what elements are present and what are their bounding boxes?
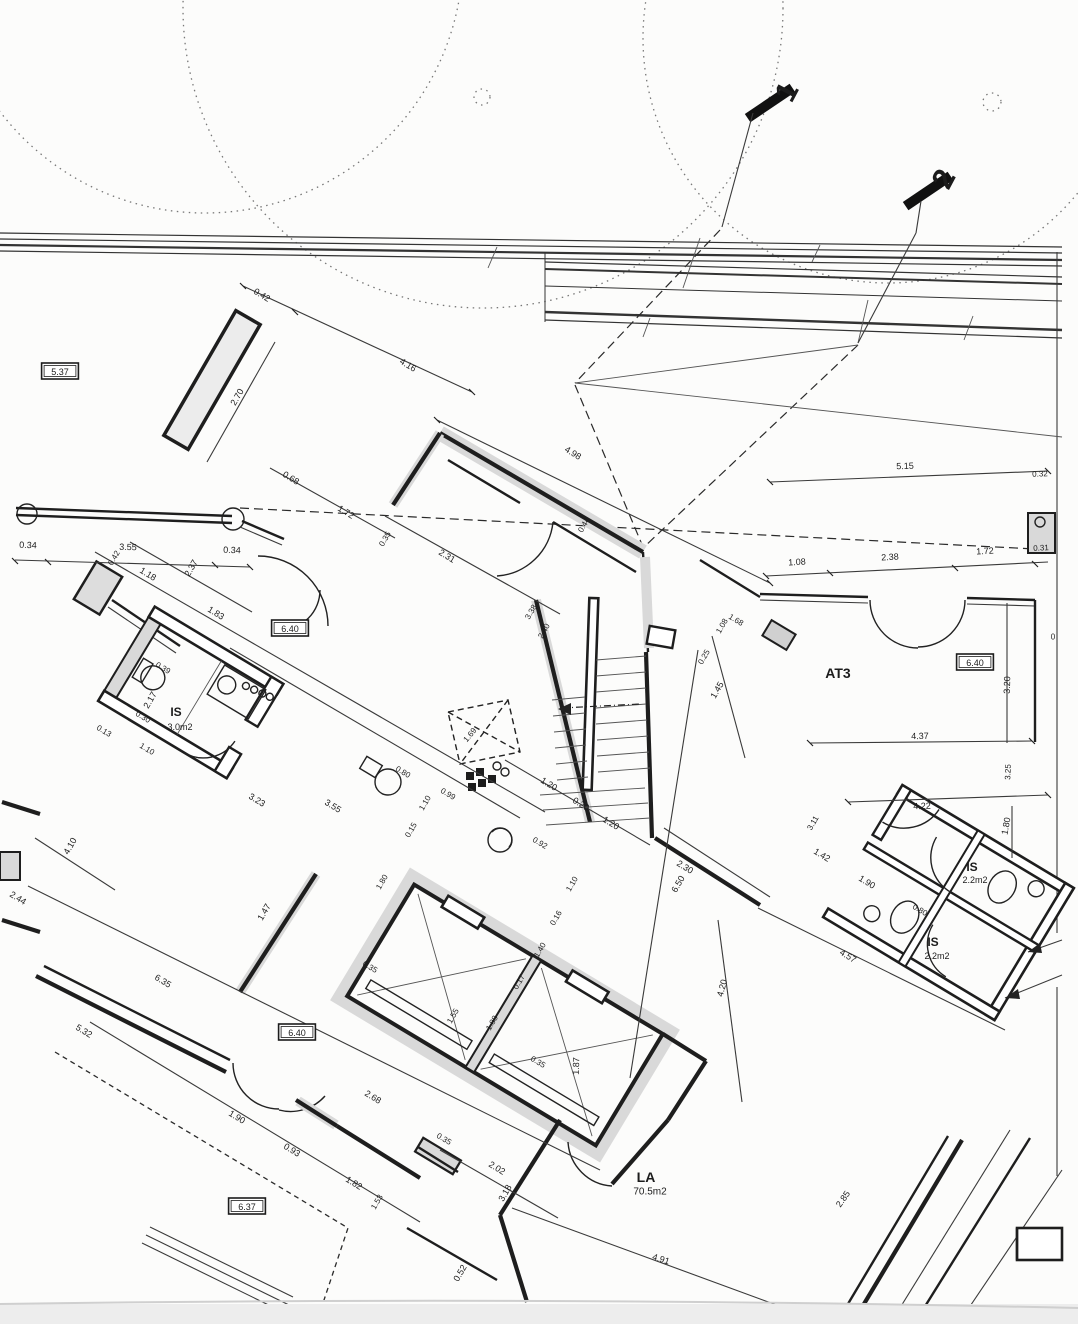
- dimension-label: 0.35: [435, 1131, 453, 1147]
- dimension-label: 1.45: [708, 680, 725, 700]
- dimension-label: 1.10: [564, 875, 580, 893]
- dimension-label: 2.38: [881, 552, 899, 563]
- svg-text:6.37: 6.37: [238, 1202, 256, 1212]
- dimension-label: 1.47: [255, 902, 272, 922]
- dimension-label: 3.11: [805, 814, 821, 832]
- toilet: [982, 866, 1022, 909]
- svg-text:1.45: 1.45: [708, 680, 725, 700]
- dimension-label: 0.34: [19, 540, 37, 551]
- svg-text:2.85: 2.85: [834, 1189, 852, 1209]
- svg-text:2.17: 2.17: [141, 690, 158, 710]
- svg-text:IS: IS: [927, 935, 938, 949]
- dimension-label: 0.52: [451, 1263, 468, 1283]
- dimension-label: 1.08: [788, 557, 806, 568]
- scan-edge: [0, 1301, 1078, 1324]
- svg-text:3.11: 3.11: [805, 814, 821, 832]
- planter: [164, 311, 275, 462]
- elevator-bank: [339, 875, 672, 1154]
- svg-text:0.31: 0.31: [1033, 543, 1050, 553]
- svg-text:0.35: 0.35: [361, 959, 379, 975]
- wc-fixtures: [360, 756, 512, 852]
- svg-text:6.50: 6.50: [669, 874, 686, 894]
- terrace-rail-bottom-left: [142, 1227, 293, 1313]
- svg-text:1.90: 1.90: [857, 873, 877, 891]
- dimension-label: 0.15: [403, 821, 419, 839]
- dimension-label: 1.90: [857, 873, 877, 891]
- dimension-label: 1.68: [727, 612, 745, 628]
- dimension-label: 0.80: [394, 764, 412, 780]
- svg-text:3.0m2: 3.0m2: [167, 722, 192, 732]
- svg-text:3.23: 3.23: [247, 791, 267, 809]
- room-area: 2.2m2: [924, 951, 949, 961]
- svg-text:0.35: 0.35: [377, 530, 393, 548]
- dimension-label: 4.37: [911, 731, 929, 741]
- svg-text:3.25: 3.25: [1003, 764, 1013, 780]
- room-label: IS: [966, 860, 977, 874]
- svg-text:1.08: 1.08: [788, 557, 806, 568]
- dimension-label: 4.16: [398, 356, 418, 374]
- svg-text:0: 0: [1051, 633, 1056, 642]
- dimension-label: 3.23: [247, 791, 267, 809]
- boundary-walls-bottom-right: [836, 940, 1062, 1324]
- svg-text:1.90: 1.90: [227, 1108, 247, 1126]
- dimension-label: 0.93: [282, 1141, 302, 1159]
- dimension-label: 1.87: [571, 1057, 582, 1075]
- svg-text:6.40: 6.40: [288, 1028, 306, 1038]
- floor-plan-drawing: 120.424.164.985.372.700.343.550.340.681.…: [0, 0, 1078, 1324]
- svg-text:0.35: 0.35: [435, 1131, 453, 1147]
- svg-text:4.10: 4.10: [61, 836, 78, 856]
- svg-text:2.2m2: 2.2m2: [924, 951, 949, 961]
- svg-text:5.32: 5.32: [74, 1022, 94, 1040]
- dimension-label: 1.20: [601, 814, 621, 832]
- svg-text:1.10: 1.10: [417, 794, 433, 812]
- svg-text:4.91: 4.91: [651, 1252, 671, 1267]
- legend-box: [1017, 1228, 1062, 1260]
- dimension-label: 3.20: [1002, 676, 1013, 694]
- dimension-label: 0.92: [531, 835, 549, 851]
- door-swing: [870, 600, 918, 648]
- dimension-label: 5.32: [74, 1022, 94, 1040]
- door-swing: [258, 556, 328, 626]
- dimension-label: 0.31: [1033, 543, 1050, 553]
- svg-text:0.34: 0.34: [19, 540, 37, 551]
- sink-block: [466, 768, 496, 791]
- sink: [861, 903, 883, 925]
- dimension-label: 2.31: [437, 547, 457, 565]
- svg-text:1.72: 1.72: [336, 503, 356, 521]
- dimension-label: 0.39: [154, 660, 172, 676]
- room-label: AT3: [825, 665, 851, 681]
- svg-text:0.32: 0.32: [1032, 469, 1048, 479]
- svg-text:1.55: 1.55: [445, 1007, 461, 1025]
- dimension-label: 4.20: [715, 978, 729, 998]
- svg-text:5.37: 5.37: [51, 367, 69, 377]
- room-label: IS: [170, 705, 181, 719]
- dimension-label: 1.72: [976, 546, 994, 557]
- dimension-label: 0.25: [696, 648, 712, 666]
- room-label: LA: [637, 1169, 656, 1185]
- is-room-left: [98, 607, 283, 779]
- svg-text:1.82: 1.82: [344, 1174, 364, 1192]
- level-label: 5.37: [42, 363, 79, 379]
- void-shaft: [448, 700, 520, 764]
- dimension-label: 0.35: [361, 959, 379, 975]
- svg-text:70.5m2: 70.5m2: [633, 1187, 667, 1198]
- dimension-label: 0: [1051, 633, 1056, 642]
- level-label: 6.40: [957, 654, 994, 670]
- svg-text:0.34: 0.34: [223, 545, 241, 556]
- svg-text:1.18: 1.18: [138, 565, 158, 583]
- svg-text:1.72: 1.72: [976, 546, 994, 557]
- terrace-walls-left: [0, 802, 40, 932]
- svg-text:2.37: 2.37: [182, 558, 199, 578]
- svg-text:1.80: 1.80: [1000, 816, 1013, 835]
- svg-text:2.70: 2.70: [228, 387, 245, 407]
- svg-text:1.83: 1.83: [206, 604, 226, 622]
- door-swing: [233, 1063, 279, 1109]
- road-band: [0, 233, 1062, 343]
- svg-text:4.22: 4.22: [913, 801, 931, 812]
- survey-point-icon: [983, 93, 1001, 111]
- dimension-label: 5.15: [896, 461, 914, 472]
- floor-plan-page: 120.424.164.985.372.700.343.550.340.681.…: [0, 0, 1078, 1324]
- svg-text:0.92: 0.92: [531, 835, 549, 851]
- svg-text:0.15: 0.15: [403, 821, 419, 839]
- dimension-label: 2.85: [834, 1189, 852, 1209]
- dimension-label: 2.37: [182, 558, 199, 578]
- level-label: 6.40: [279, 1024, 316, 1040]
- svg-text:2.38: 2.38: [881, 552, 899, 563]
- svg-text:6.40: 6.40: [281, 624, 299, 634]
- svg-text:1.53: 1.53: [369, 1193, 385, 1211]
- door-swing: [497, 522, 553, 576]
- svg-text:2.02: 2.02: [487, 1159, 507, 1177]
- svg-text:0.42: 0.42: [252, 286, 272, 304]
- dimension-label: 0.34: [223, 545, 241, 556]
- svg-text:IS: IS: [966, 860, 977, 874]
- svg-text:1.80: 1.80: [374, 873, 390, 891]
- dimension-label: 2.44: [8, 889, 28, 907]
- svg-text:4.98: 4.98: [563, 444, 583, 462]
- dimension-label: 0.35: [377, 530, 393, 548]
- section-marker-1: [575, 84, 795, 383]
- dimension-label: 4.22: [913, 801, 931, 812]
- dimension-label: 3.55: [323, 797, 343, 815]
- svg-text:4.16: 4.16: [398, 356, 418, 374]
- svg-text:1.87: 1.87: [571, 1057, 582, 1075]
- dimension-label: 0.42: [252, 286, 272, 304]
- dimension-label: 1.80: [1000, 816, 1013, 835]
- dimension-label: 2.17: [141, 690, 158, 710]
- dimension-label: 6.50: [669, 874, 686, 894]
- dimension-label: 0.13: [95, 723, 113, 739]
- svg-text:3.20: 3.20: [1002, 676, 1013, 694]
- svg-text:0.93: 0.93: [282, 1141, 302, 1159]
- room-area: 70.5m2: [633, 1187, 667, 1198]
- survey-point-icon: [474, 89, 490, 105]
- level-label: 6.40: [272, 620, 309, 636]
- svg-text:0.39: 0.39: [154, 660, 172, 676]
- column: [222, 508, 244, 530]
- stair-pier: [647, 626, 676, 648]
- svg-text:1.68: 1.68: [727, 612, 745, 628]
- svg-text:3.55: 3.55: [323, 797, 343, 815]
- svg-text:2.68: 2.68: [363, 1088, 383, 1106]
- svg-text:4.57: 4.57: [838, 947, 858, 965]
- door-swing: [918, 600, 965, 647]
- dimension-label: 3.55: [119, 542, 137, 553]
- svg-text:AT3: AT3: [825, 665, 851, 681]
- room-area: 2.2m2: [962, 875, 987, 885]
- stair-core: [448, 598, 675, 838]
- dimension-label: 2.68: [363, 1088, 383, 1106]
- dimension-label: 2.70: [228, 387, 245, 407]
- room-label: IS: [927, 935, 938, 949]
- dimension-label: 0.16: [548, 909, 564, 927]
- dimension-label: 1.10: [138, 741, 156, 757]
- dimension-label: 0.99: [439, 786, 457, 802]
- svg-text:6.40: 6.40: [966, 658, 984, 668]
- dimension-label: 1.82: [344, 1174, 364, 1192]
- dimension-label: 4.91: [651, 1252, 671, 1267]
- svg-text:IS: IS: [170, 705, 181, 719]
- svg-text:0.80: 0.80: [394, 764, 412, 780]
- svg-text:1.10: 1.10: [138, 741, 156, 757]
- svg-text:2.44: 2.44: [8, 889, 28, 907]
- setting-out-lines: [55, 345, 1062, 1324]
- dimension-label: 3.25: [1003, 764, 1013, 780]
- tree-canopy-circles: [0, 0, 1078, 308]
- svg-text:1.20: 1.20: [601, 814, 621, 832]
- dimension-label: 6.35: [153, 972, 173, 990]
- svg-text:LA: LA: [637, 1169, 656, 1185]
- svg-text:0.13: 0.13: [95, 723, 113, 739]
- dimension-label: 1.55: [445, 1007, 461, 1025]
- level-label: 6.37: [229, 1198, 266, 1214]
- dimension-label: 1.80: [374, 873, 390, 891]
- dimension-label: 4.57: [838, 947, 858, 965]
- dimension-label: 1.83: [206, 604, 226, 622]
- svg-text:1.42: 1.42: [812, 846, 832, 864]
- svg-text:4.20: 4.20: [715, 978, 729, 998]
- svg-text:4.37: 4.37: [911, 731, 929, 741]
- dimension-label: 1.10: [417, 794, 433, 812]
- svg-text:0.16: 0.16: [548, 909, 564, 927]
- dimension-label: 1.18: [138, 565, 158, 583]
- wall-pier: [762, 620, 795, 650]
- dimension-label: 4.10: [61, 836, 78, 856]
- wall-pier: [74, 561, 122, 614]
- dimension-label: 0.32: [1032, 469, 1048, 479]
- svg-text:6.35: 6.35: [153, 972, 173, 990]
- svg-text:0.52: 0.52: [451, 1263, 468, 1283]
- svg-text:3.55: 3.55: [119, 542, 137, 553]
- svg-text:2.2m2: 2.2m2: [962, 875, 987, 885]
- svg-text:1.10: 1.10: [564, 875, 580, 893]
- dimension-label: 1.72: [336, 503, 356, 521]
- room-area: 3.0m2: [167, 722, 192, 732]
- dimension-label: 1.42: [812, 846, 832, 864]
- svg-text:0.25: 0.25: [696, 648, 712, 666]
- dimension-label: 1.53: [369, 1193, 385, 1211]
- svg-text:0.99: 0.99: [439, 786, 457, 802]
- svg-text:5.15: 5.15: [896, 461, 914, 472]
- svg-text:1.47: 1.47: [255, 902, 272, 922]
- dimension-label: 1.90: [227, 1108, 247, 1126]
- dimension-label: 2.02: [487, 1159, 507, 1177]
- svg-text:2.31: 2.31: [437, 547, 457, 565]
- dimension-label: 4.98: [563, 444, 583, 462]
